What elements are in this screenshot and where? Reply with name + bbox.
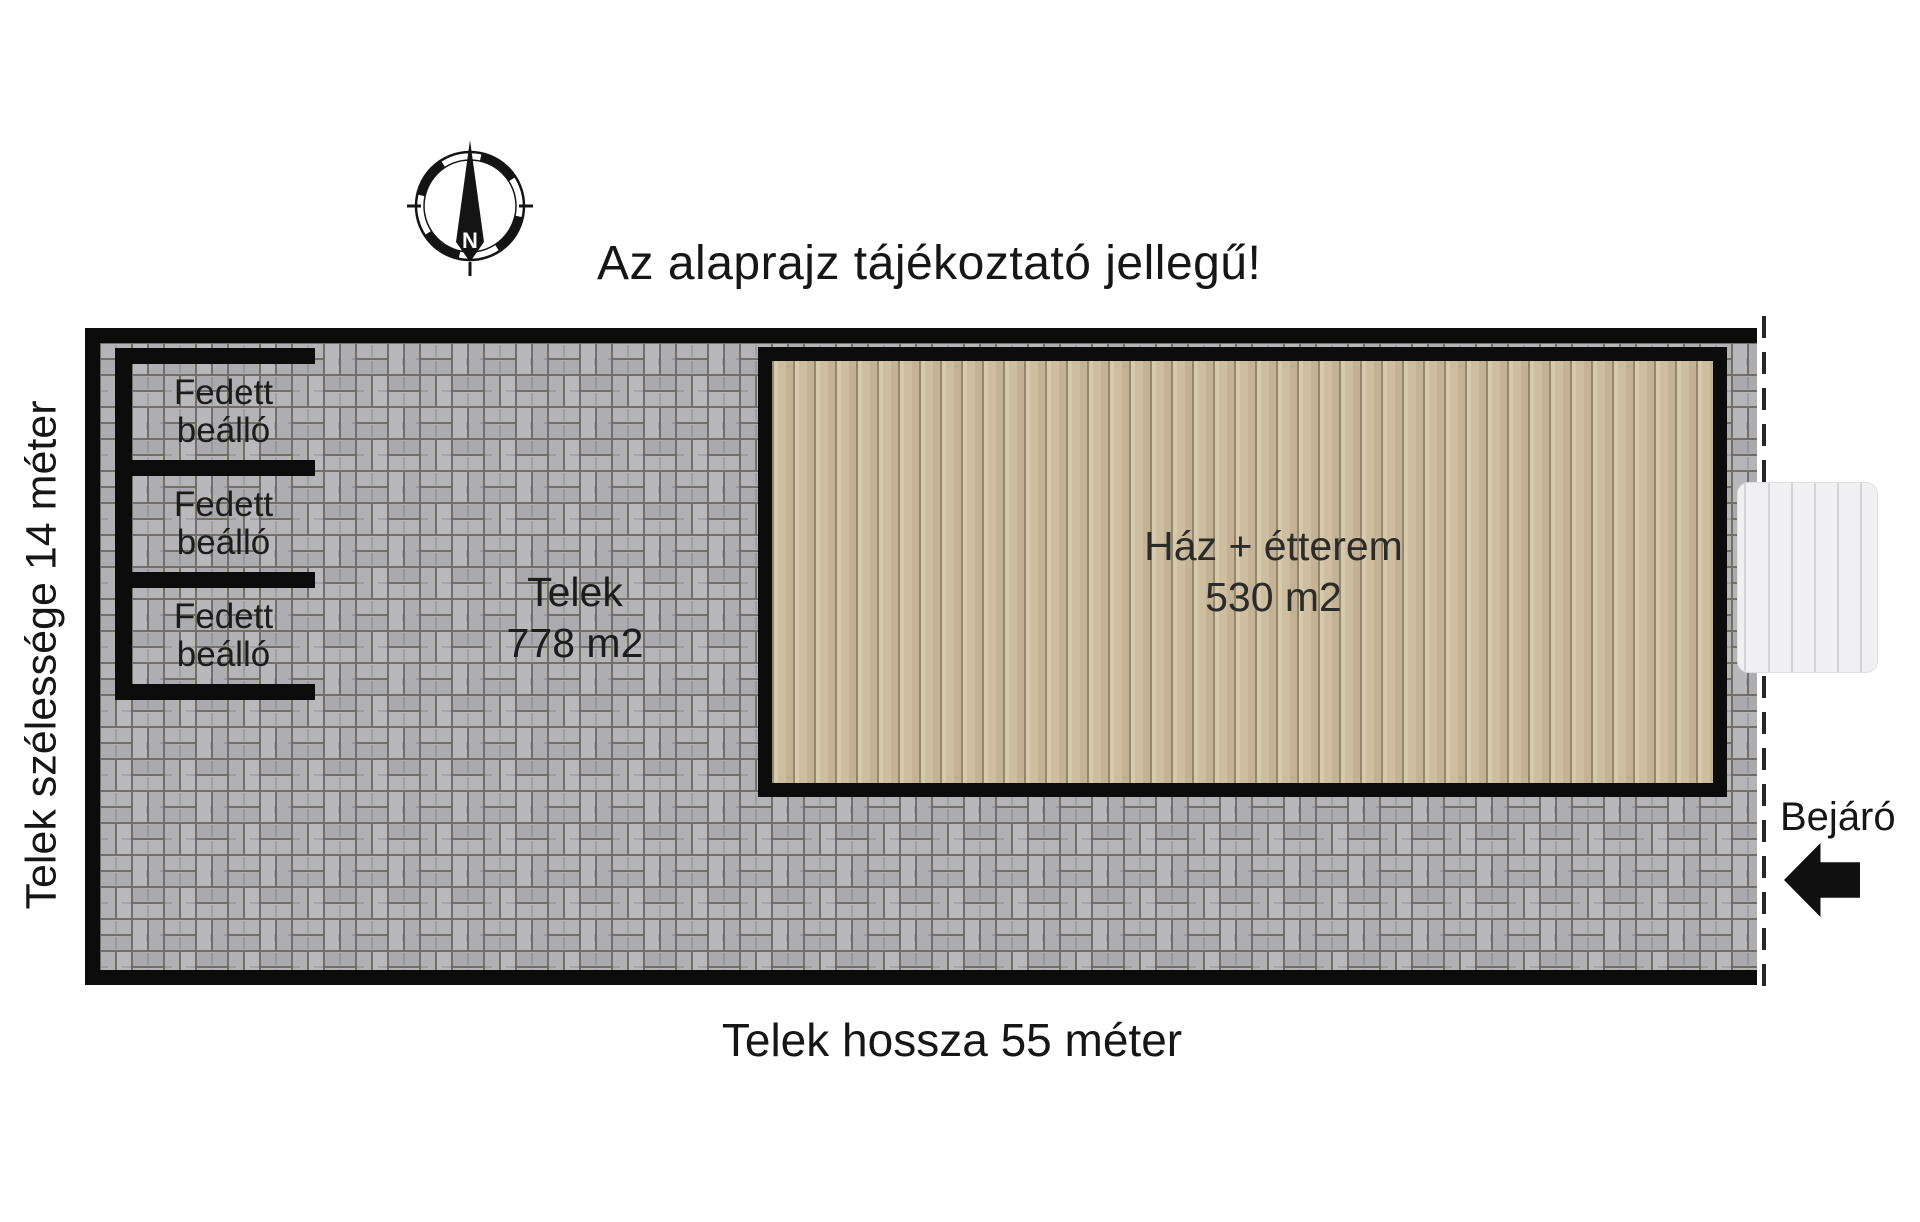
carport-label-line1: Fedett: [174, 598, 273, 637]
carport-divider-wall: [115, 348, 315, 364]
plot-length-label: Telek hossza 55 méter: [722, 1013, 1182, 1067]
carport-label-line1: Fedett: [174, 374, 273, 413]
site-plan: N Az alaprajz tájékoztató jellegű!: [0, 0, 1920, 1222]
carport-label-line2: beálló: [177, 524, 270, 563]
carport-back-wall: [115, 348, 132, 700]
carport-divider-wall: [115, 460, 315, 476]
plot-area-label: Telek 778 m2: [507, 567, 644, 670]
carport-label-line2: beálló: [177, 636, 270, 675]
carport-label-line1: Fedett: [174, 486, 273, 525]
compass-north-letter: N: [462, 228, 478, 253]
plot-area-value: 778 m2: [507, 618, 644, 669]
building: Ház + étterem 530 m2: [758, 347, 1727, 797]
carport-label-line2: beálló: [177, 412, 270, 451]
carport-label: Fedett beálló: [132, 364, 315, 460]
carport-label: Fedett beálló: [132, 476, 315, 572]
entrance-label: Bejáró: [1780, 795, 1896, 840]
building-area-value: 530 m2: [1205, 572, 1342, 623]
plot-name: Telek: [507, 567, 644, 618]
carport-divider-wall: [115, 572, 315, 588]
plan-disclaimer-title: Az alaprajz tájékoztató jellegű!: [597, 236, 1261, 291]
plot-width-label: Telek szélessége 14 méter: [18, 400, 67, 909]
carport-label: Fedett beálló: [132, 588, 315, 684]
entrance-steps: [1737, 482, 1878, 673]
carport-divider-wall: [115, 684, 315, 700]
building-label: Ház + étterem 530 m2: [803, 361, 1744, 783]
compass-rose-icon: N: [395, 126, 545, 282]
building-name: Ház + étterem: [1144, 521, 1403, 572]
entrance-arrow-icon: [1784, 843, 1860, 917]
